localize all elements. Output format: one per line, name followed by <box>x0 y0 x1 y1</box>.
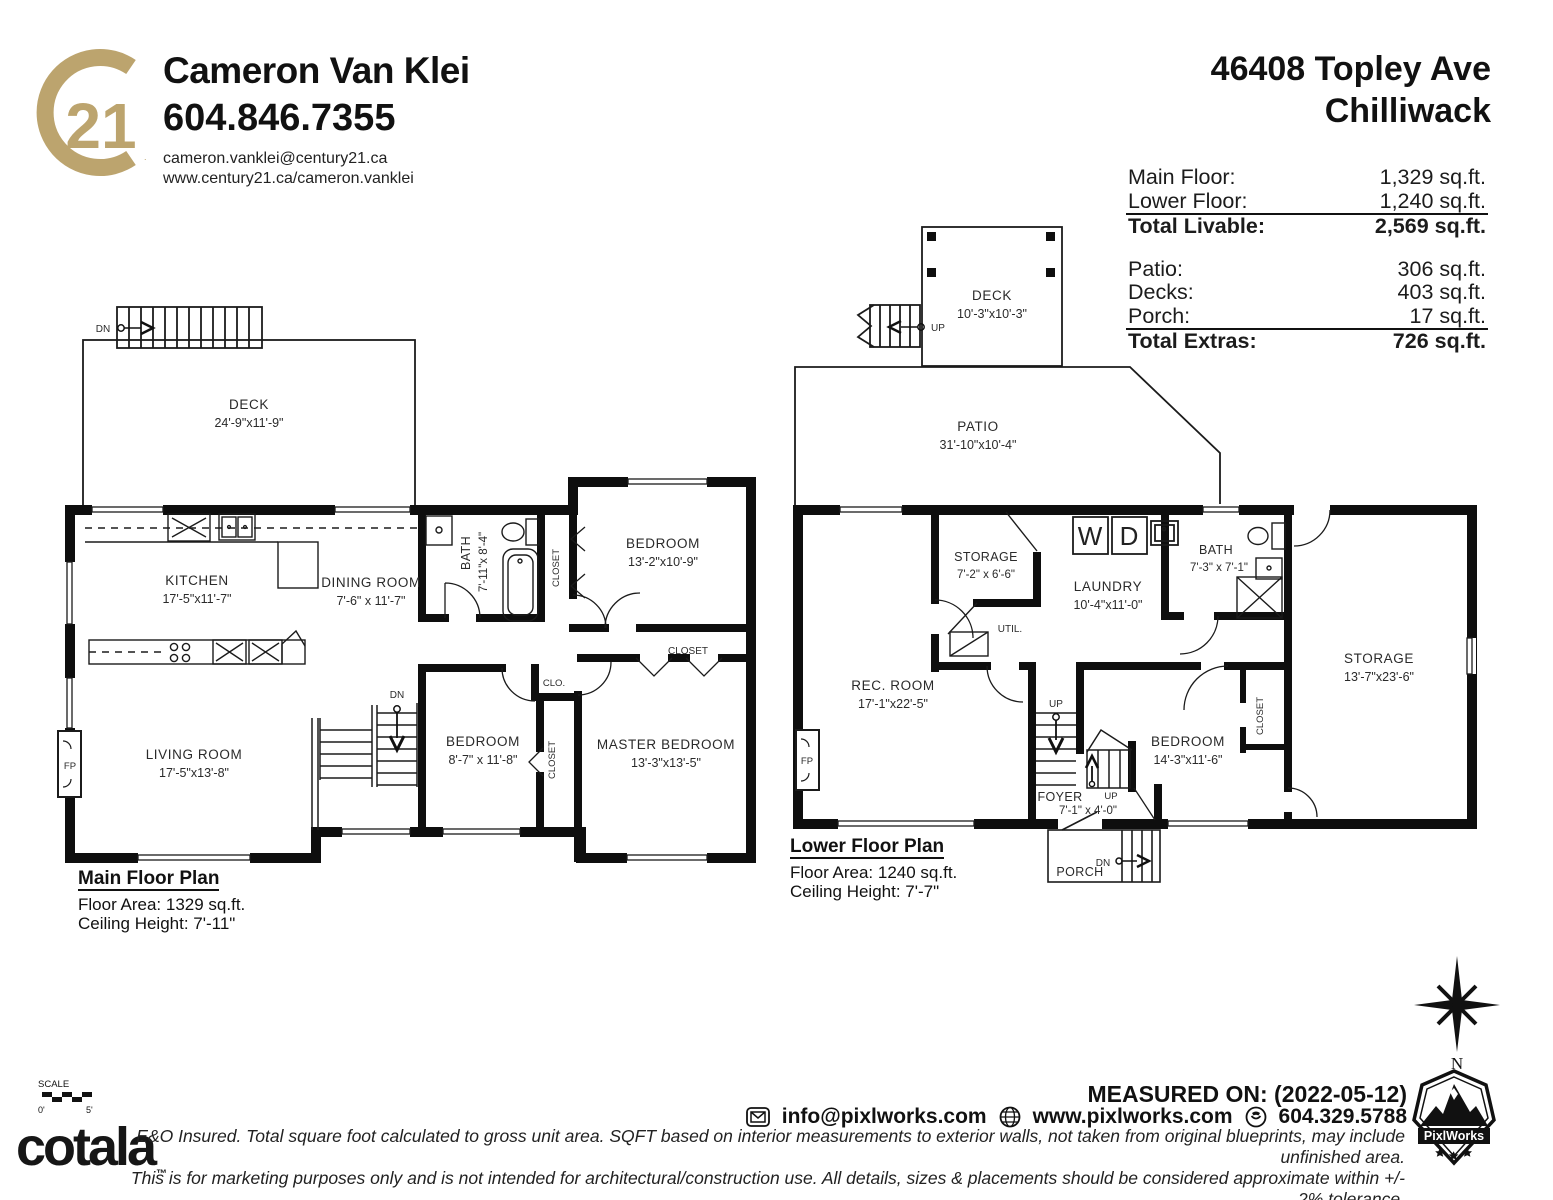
room-dims: 10'-4"x11'-0" <box>1073 598 1142 612</box>
lower-floor-caption: Lower Floor Plan Floor Area: 1240 sq.ft.… <box>790 837 957 901</box>
area-value: 1,329 sq.ft. <box>1380 167 1486 189</box>
room-dims: 13'-2"x10'-9" <box>628 555 698 569</box>
caption-area: Floor Area: 1240 sq.ft. <box>790 863 957 882</box>
scale-end: 5' <box>86 1105 93 1115</box>
room-label: DINING ROOM <box>321 575 421 590</box>
compass-icon: N <box>1412 952 1502 1072</box>
trademark-icon: . <box>144 152 147 162</box>
room-label: LAUNDRY <box>1074 579 1142 594</box>
table-row: Main Floor: 1,329 sq.ft. <box>1126 166 1488 190</box>
room-label: BEDROOM <box>1151 734 1225 749</box>
room-dims: 17'-5"x11'-7" <box>162 592 231 606</box>
scale-start: 0' <box>38 1105 45 1115</box>
scale-title: SCALE <box>38 1079 69 1090</box>
caption-ceiling: Ceiling Height: 7'-7" <box>790 882 957 901</box>
room-label: STORAGE <box>1344 651 1414 666</box>
measured-on: MEASURED ON: (2022-05-12) <box>1087 1081 1407 1108</box>
room-dims: 7'-2" x 6'-6" <box>957 569 1015 581</box>
area-label: Main Floor: <box>1128 167 1236 189</box>
svg-text:FP: FP <box>801 756 813 767</box>
washer-label: W <box>1078 521 1103 551</box>
agent-phone: 604.846.7355 <box>163 97 395 140</box>
room-label: DECK <box>972 288 1012 303</box>
table-row: Lower Floor: 1,240 sq.ft. <box>1126 190 1488 216</box>
room-label: MASTER BEDROOM <box>597 737 735 752</box>
room-label: FOYER <box>1037 790 1082 804</box>
room-dims: 7'-11"x 8'-4" <box>478 532 490 592</box>
agent-website: www.century21.ca/cameron.vanklei <box>163 170 414 188</box>
disclaimer-line2: This is for marketing purposes only and … <box>125 1168 1405 1200</box>
closet-label: CLOSET <box>547 741 558 779</box>
main-dn-arrow: DN <box>390 690 404 750</box>
closet-label: CLOSET <box>1255 697 1266 735</box>
disclaimer-line1: E&O Insured. Total square foot calculate… <box>125 1126 1405 1168</box>
room-label: BATH <box>459 536 473 570</box>
svg-text:FP: FP <box>64 761 76 772</box>
caption-title: Lower Floor Plan <box>790 837 944 859</box>
email-icon <box>746 1107 770 1127</box>
dryer-label: D <box>1120 521 1139 551</box>
room-label: BATH <box>1199 543 1233 557</box>
main-floor-caption: Main Floor Plan Floor Area: 1329 sq.ft. … <box>78 869 245 933</box>
area-value: 1,240 sq.ft. <box>1380 191 1486 213</box>
deck-dn-arrow: DN <box>96 322 153 335</box>
room-dims: 7'-3" x 7'-1" <box>1190 562 1248 574</box>
svg-text:DN: DN <box>390 690 404 701</box>
caption-ceiling: Ceiling Height: 7'-11" <box>78 914 245 933</box>
svg-text:DN: DN <box>96 324 110 335</box>
main-stairs <box>312 703 417 830</box>
closet-label: CLOSET <box>551 549 562 587</box>
deck-up-arrow: UP <box>889 321 945 334</box>
room-dims: 17'-5"x13'-8" <box>159 766 229 780</box>
property-address: 46408 Topley Ave Chilliwack <box>1211 48 1491 132</box>
room-label: LIVING ROOM <box>146 747 243 762</box>
util-icon <box>948 512 1037 656</box>
address-line2: Chilliwack <box>1211 90 1491 132</box>
floorplan-sheet: 21 . Cameron Van Klei 604.846.7355 camer… <box>0 0 1553 1200</box>
pixlworks-badge: PixlWorks <box>1408 1068 1500 1168</box>
scale-bar: SCALE 0' 5' <box>34 1076 144 1121</box>
room-label: PATIO <box>957 419 999 434</box>
area-label: Lower Floor: <box>1128 191 1248 213</box>
room-dims: 7'-6" x 11'-7" <box>336 594 405 608</box>
room-dims: 24'-9"x11'-9" <box>214 416 283 430</box>
room-label: KITCHEN <box>165 573 228 588</box>
svg-text:UP: UP <box>1104 791 1117 802</box>
address-line1: 46408 Topley Ave <box>1211 48 1491 90</box>
main-floor-plan: DN <box>55 295 770 925</box>
main-room-labels: DECK 24'-9"x11'-9" KITCHEN 17'-5"x11'-7"… <box>146 397 735 780</box>
caption-title: Main Floor Plan <box>78 869 219 891</box>
pixlworks-label: PixlWorks <box>1424 1129 1484 1143</box>
lower-floor-plan: UP <box>780 215 1490 895</box>
svg-text:UP: UP <box>931 323 945 334</box>
room-dims: 8'-7" x 11'-8" <box>448 753 517 767</box>
closet-label: CLOSET <box>668 646 708 657</box>
room-dims: 31'-10"x10'-4" <box>940 438 1017 452</box>
lower-deck-outline <box>795 227 1220 507</box>
scale-segments <box>42 1092 92 1102</box>
disclaimer: E&O Insured. Total square foot calculate… <box>125 1126 1405 1200</box>
globe-icon <box>999 1106 1021 1128</box>
room-label: UTIL. <box>998 624 1022 635</box>
svg-text:UP: UP <box>1049 699 1063 710</box>
main-fireplace: FP <box>58 731 81 797</box>
century21-number: 21 <box>65 90 136 162</box>
room-label: BEDROOM <box>446 734 520 749</box>
room-dims: 14'-3"x11'-6" <box>1153 753 1222 767</box>
century21-logo: 21 . <box>28 42 163 180</box>
room-label: BEDROOM <box>626 536 700 551</box>
room-label: STORAGE <box>954 550 1018 564</box>
lower-fireplace: FP <box>796 730 819 790</box>
caption-area: Floor Area: 1329 sq.ft. <box>78 895 245 914</box>
room-dims: 10'-3"x10'-3" <box>957 307 1027 321</box>
deck-posts <box>927 232 1055 277</box>
room-label: DECK <box>229 397 269 412</box>
room-dims: 13'-3"x13'-5" <box>631 756 701 770</box>
room-dims: 17'-1"x22'-5" <box>858 697 928 711</box>
agent-name: Cameron Van Klei <box>163 50 470 92</box>
room-label: PORCH <box>1056 865 1103 879</box>
foyer-up-arrow: UP <box>1086 756 1118 802</box>
agent-email: cameron.vanklei@century21.ca <box>163 150 387 168</box>
closet-label: CLO. <box>543 678 565 689</box>
room-dims: 7'-1" x 4'-0" <box>1059 805 1117 817</box>
phone-icon <box>1245 1106 1267 1128</box>
room-dims: 13'-7"x23'-6" <box>1344 670 1414 684</box>
room-label: REC. ROOM <box>851 678 934 693</box>
